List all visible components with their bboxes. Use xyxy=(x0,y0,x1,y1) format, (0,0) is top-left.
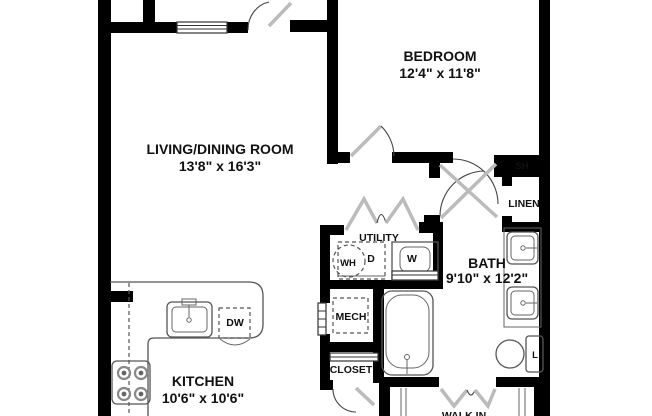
wall-bath-bottom-left xyxy=(379,377,439,387)
hall-doors xyxy=(440,159,498,218)
walls xyxy=(98,0,550,416)
mech-louver-door xyxy=(318,303,326,335)
bathtub xyxy=(382,291,433,375)
kitchen-dims: 10'6" x 10'6" xyxy=(162,390,244,406)
wall-top-mid xyxy=(227,22,248,33)
wall-bedroom-bottom-a xyxy=(337,152,350,163)
utility-bifold-doors xyxy=(346,199,418,230)
wall-closet-bottom-stub xyxy=(320,380,333,390)
wall-linen-bottom xyxy=(502,222,543,232)
washer-label: W xyxy=(407,253,417,265)
living-dining-label: LIVING/DINING ROOM xyxy=(147,141,294,157)
bath-fixtures xyxy=(382,228,543,375)
wall-hall-stub-lower xyxy=(424,215,440,225)
dryer-label: D xyxy=(367,253,375,265)
walkin-bifold-doors xyxy=(441,389,495,406)
bedroom-label: BEDROOM xyxy=(403,48,476,64)
stove xyxy=(112,361,150,404)
linen-cabinet-label: L xyxy=(532,350,538,361)
wall-exterior-right xyxy=(539,0,550,386)
wall-top-right xyxy=(290,20,329,32)
bedroom-door xyxy=(351,126,394,156)
kitchen-label: KITCHEN xyxy=(172,373,234,389)
linen-label: LINEN xyxy=(508,198,540,210)
wall-hall-stub-upper xyxy=(429,158,440,178)
closet-shelf xyxy=(330,353,378,361)
vanity-sink-top xyxy=(507,232,538,264)
wall-closet-top xyxy=(320,342,378,352)
wall-linen-left-top xyxy=(502,177,512,186)
bath-label: BATH xyxy=(468,255,506,271)
wall-exterior-left xyxy=(98,0,111,416)
window xyxy=(177,22,227,33)
mech-label: MECH xyxy=(336,311,367,323)
bath-dims: 9'10" x 12'2" xyxy=(446,270,528,286)
water-heater-label: WH xyxy=(340,258,356,269)
closet-label: CLOSET xyxy=(330,364,373,376)
floorplan-page: LIVING/DINING ROOM 13'8" x 16'3" BEDROOM… xyxy=(0,0,652,416)
wall-bedroom-bottom-b xyxy=(392,152,453,163)
wall-utility-top-left-stub xyxy=(320,225,344,235)
vanity-sink-bottom xyxy=(507,287,538,319)
kitchen-sink xyxy=(167,299,212,337)
wall-top-left xyxy=(110,22,177,33)
wall-mech-left-top xyxy=(320,289,330,303)
living-dining-dims: 13'8" x 16'3" xyxy=(179,158,261,174)
dishwasher-label: DW xyxy=(226,317,244,329)
wall-walkin-left xyxy=(379,387,390,416)
sh-label: SH xyxy=(515,161,528,172)
wall-right-lower xyxy=(534,377,550,416)
closet-door xyxy=(333,388,374,412)
utility-label: UTILITY xyxy=(359,232,399,244)
wall-living-bedroom-divider xyxy=(327,0,338,164)
wall-utility-bottom xyxy=(320,280,443,289)
floorplan-canvas: LIVING/DINING ROOM 13'8" x 16'3" BEDROOM… xyxy=(0,0,652,416)
walk-in-label: WALK IN xyxy=(442,410,486,416)
entry-door xyxy=(248,2,291,30)
bedroom-dims: 12'4" x 11'8" xyxy=(399,65,480,81)
